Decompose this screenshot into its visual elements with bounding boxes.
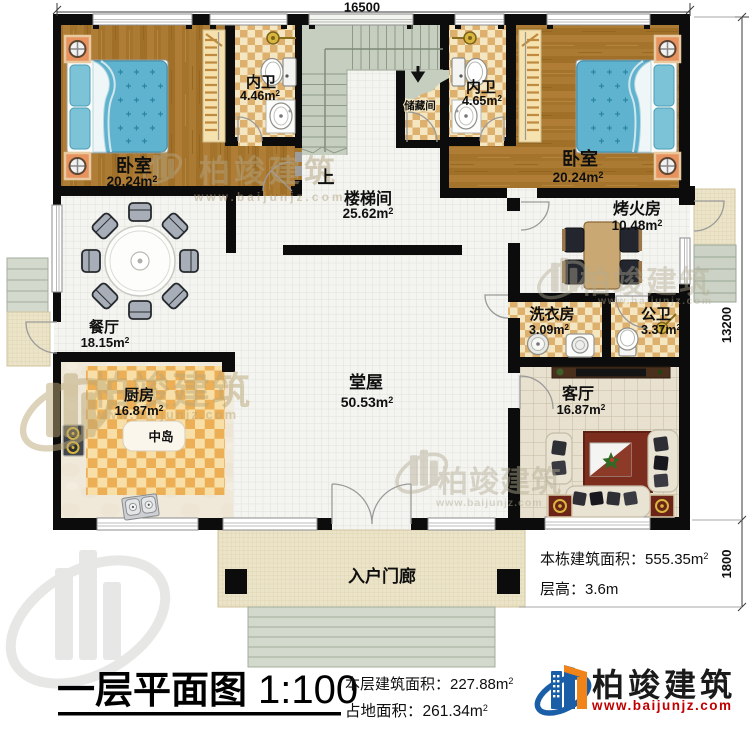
svg-text:客厅: 客厅 [562, 384, 594, 403]
svg-text:50.53m2: 50.53m2 [341, 394, 394, 410]
svg-text:烤火房: 烤火房 [613, 199, 661, 218]
svg-text:上: 上 [318, 168, 335, 187]
svg-text:1800: 1800 [719, 550, 734, 579]
svg-text:占地面积：261.34m2: 占地面积：261.34m2 [345, 702, 488, 720]
svg-text:卧室: 卧室 [116, 155, 152, 176]
svg-text:www.baijunjz.com: www.baijunjz.com [591, 698, 733, 713]
svg-text:一层平面图: 一层平面图 [57, 670, 247, 712]
svg-text:公卫: 公卫 [641, 306, 671, 323]
svg-text:1:100: 1:100 [258, 668, 358, 712]
svg-text:餐厅: 餐厅 [89, 318, 119, 336]
svg-text:卧室: 卧室 [562, 148, 598, 169]
svg-text:25.62m2: 25.62m2 [343, 206, 394, 221]
svg-text:本层建筑面积：227.88m2: 本层建筑面积：227.88m2 [345, 676, 513, 693]
svg-text:18.15m2: 18.15m2 [81, 335, 130, 350]
svg-text:www.baijunjz.com: www.baijunjz.com [435, 497, 543, 509]
svg-text:20.24m2: 20.24m2 [553, 170, 604, 185]
svg-text:13200: 13200 [719, 307, 734, 343]
svg-text:储藏间: 储藏间 [404, 99, 436, 112]
svg-text:中岛: 中岛 [148, 429, 173, 444]
svg-text:16500: 16500 [344, 0, 380, 15]
svg-text:3.09m2: 3.09m2 [529, 323, 569, 337]
svg-text:堂屋: 堂屋 [349, 372, 383, 392]
svg-text:柏竣建筑: 柏竣建筑 [438, 465, 562, 499]
svg-text:16.87m2: 16.87m2 [115, 403, 164, 418]
svg-text:10.48m2: 10.48m2 [612, 218, 663, 233]
svg-text:本栋建筑面积：555.35m2: 本栋建筑面积：555.35m2 [540, 550, 708, 568]
svg-text:3.37m2: 3.37m2 [641, 323, 681, 337]
svg-text:www.baijunjz.com: www.baijunjz.com [193, 190, 346, 204]
svg-text:入户门廊: 入户门廊 [348, 566, 416, 586]
svg-text:洗衣房: 洗衣房 [529, 305, 574, 323]
svg-text:层高：3.6m: 层高：3.6m [540, 581, 618, 598]
svg-text:4.46m2: 4.46m2 [240, 89, 280, 103]
svg-text:4.65m2: 4.65m2 [462, 94, 502, 108]
svg-text:16.87m2: 16.87m2 [557, 402, 606, 417]
svg-text:20.24m2: 20.24m2 [107, 174, 158, 189]
svg-text:厨房: 厨房 [124, 386, 154, 404]
